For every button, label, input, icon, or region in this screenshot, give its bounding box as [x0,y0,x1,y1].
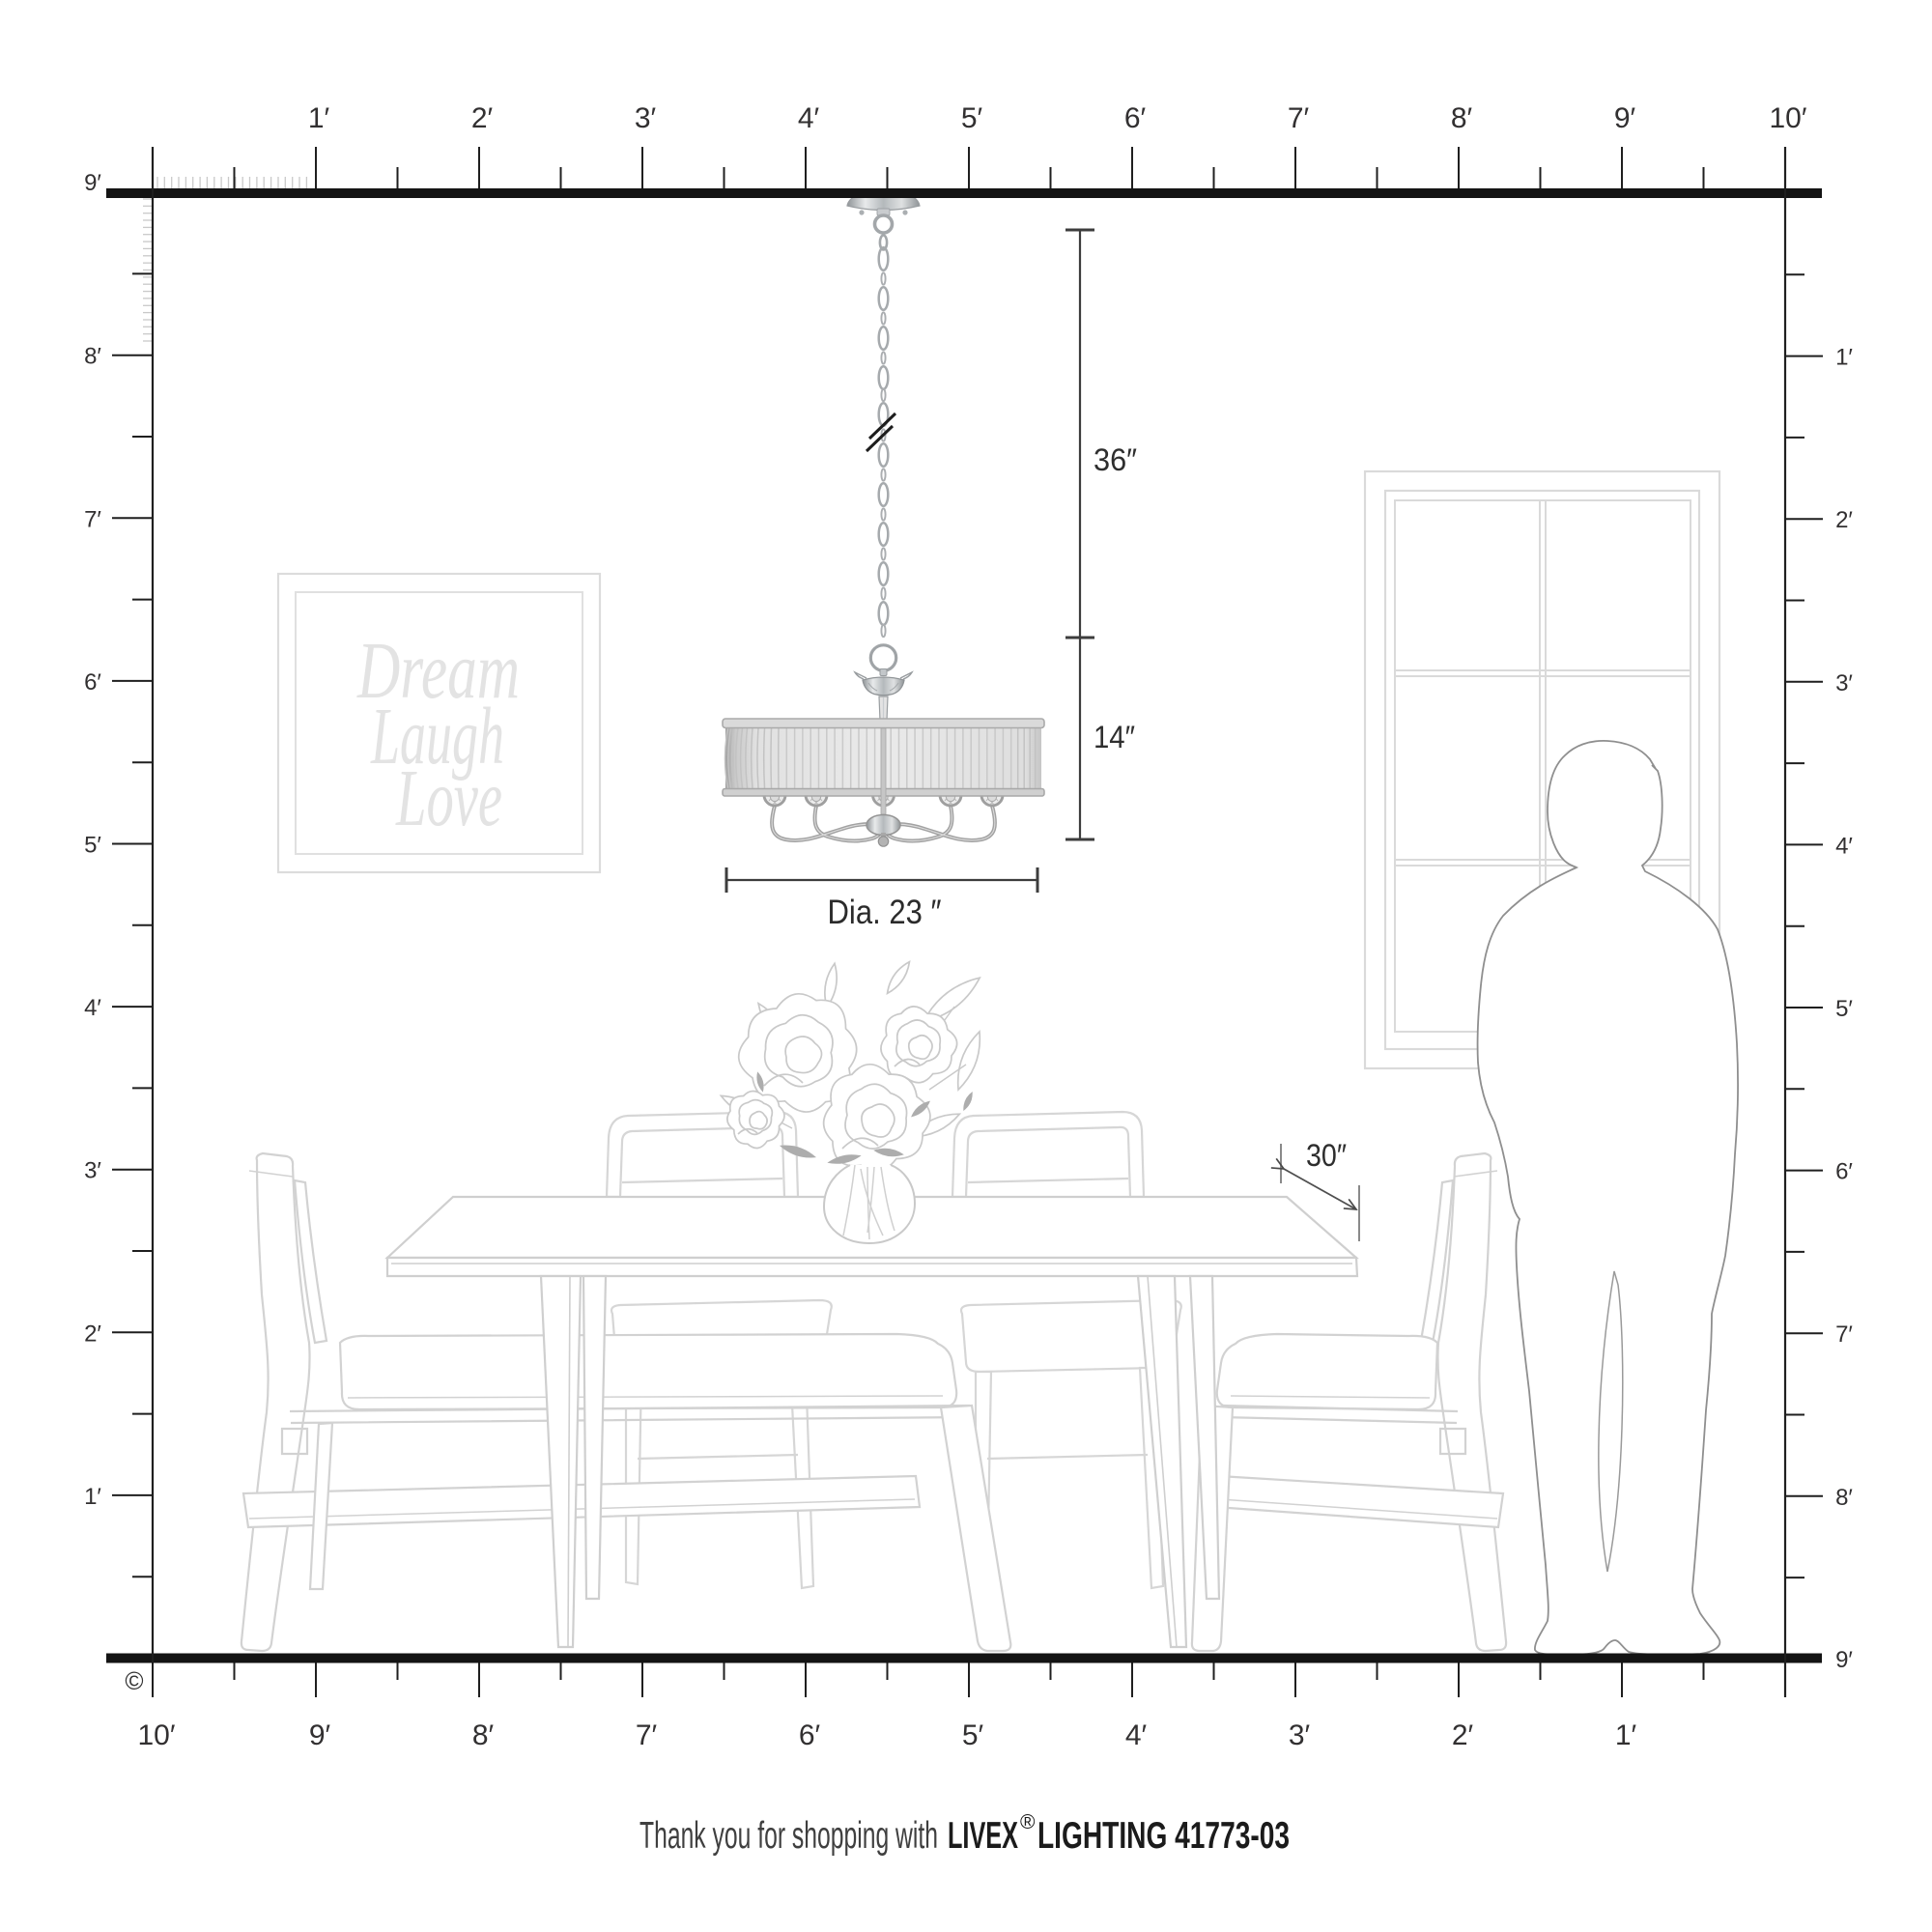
svg-text:Thank you for shopping with: Thank you for shopping with [639,1815,938,1857]
svg-text:4′: 4′ [1125,1719,1148,1751]
svg-text:©: © [125,1666,143,1695]
svg-text:6′: 6′ [1835,1159,1853,1185]
svg-text:5′: 5′ [1835,996,1853,1022]
svg-text:8′: 8′ [1835,1485,1853,1511]
svg-text:9′: 9′ [84,170,101,196]
svg-text:7′: 7′ [84,506,101,532]
svg-text:2′: 2′ [1835,507,1853,533]
svg-text:36″: 36″ [1094,442,1137,477]
svg-text:5′: 5′ [84,833,101,859]
svg-text:4′: 4′ [1835,833,1853,859]
svg-text:1′: 1′ [1615,1719,1637,1751]
svg-text:3′: 3′ [84,1158,101,1184]
svg-text:9′: 9′ [309,1719,331,1751]
svg-text:8′: 8′ [84,344,101,370]
svg-text:2′: 2′ [84,1321,101,1347]
svg-text:Love: Love [395,753,502,843]
svg-text:2′: 2′ [471,102,494,134]
svg-text:9′: 9′ [1835,1647,1853,1673]
svg-text:10′: 10′ [138,1719,176,1751]
svg-text:4′: 4′ [84,995,101,1021]
svg-text:7′: 7′ [636,1719,658,1751]
svg-text:1′: 1′ [308,102,330,134]
svg-text:30″: 30″ [1306,1138,1347,1173]
svg-text:5′: 5′ [961,102,983,134]
svg-text:3′: 3′ [635,102,657,134]
svg-text:LIVEX: LIVEX [948,1815,1018,1857]
svg-text:6′: 6′ [84,669,101,696]
svg-text:1′: 1′ [1835,345,1853,371]
svg-text:LIGHTING 41773-03: LIGHTING 41773-03 [1037,1815,1290,1857]
svg-text:®: ® [1020,1811,1036,1833]
svg-text:2′: 2′ [1452,1719,1474,1751]
svg-text:4′: 4′ [798,102,820,134]
svg-text:7′: 7′ [1288,102,1310,134]
svg-text:8′: 8′ [1451,102,1473,134]
svg-text:7′: 7′ [1835,1321,1853,1348]
svg-text:14″: 14″ [1094,720,1135,754]
svg-text:6′: 6′ [1124,102,1147,134]
svg-text:9′: 9′ [1614,102,1636,134]
svg-text:3′: 3′ [1289,1719,1311,1751]
svg-text:6′: 6′ [799,1719,821,1751]
svg-text:1′: 1′ [84,1484,101,1510]
svg-text:3′: 3′ [1835,670,1853,696]
svg-text:8′: 8′ [472,1719,495,1751]
svg-text:10′: 10′ [1770,102,1807,134]
svg-text:5′: 5′ [962,1719,984,1751]
svg-text:Dia. 23 ″: Dia. 23 ″ [828,894,942,931]
